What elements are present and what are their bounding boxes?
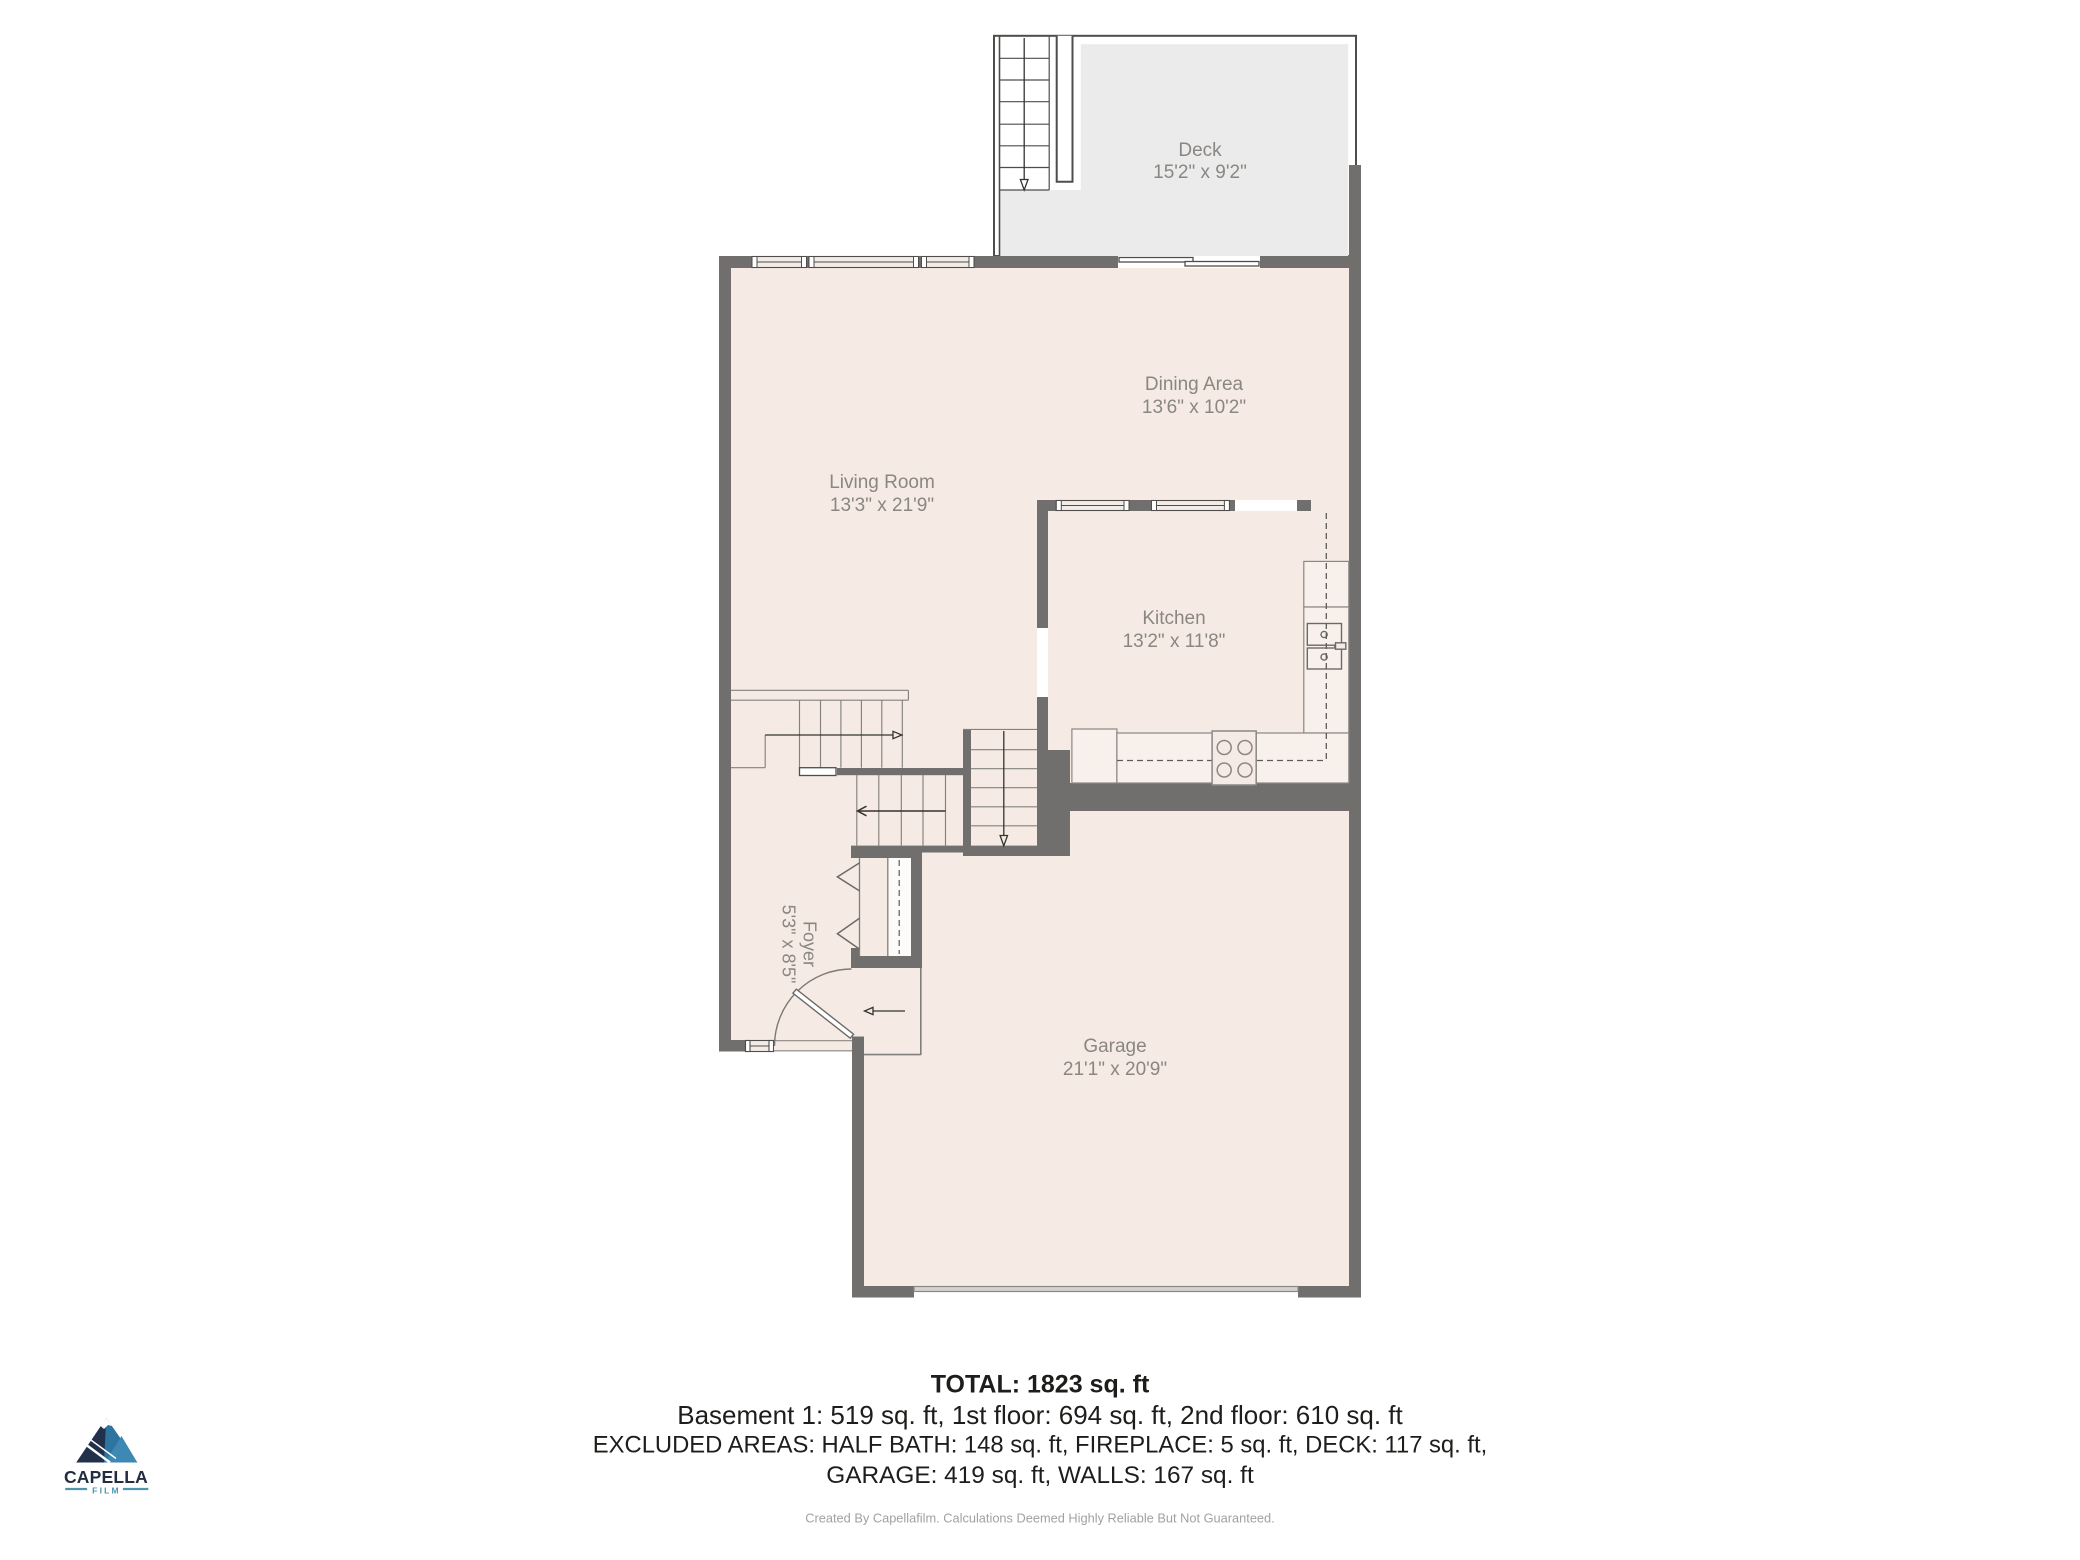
svg-text:Living Room: Living Room [829,472,935,493]
svg-text:13'2" x 11'8": 13'2" x 11'8" [1123,631,1226,652]
svg-text:EXCLUDED AREAS: HALF BATH: 148: EXCLUDED AREAS: HALF BATH: 148 sq. ft, F… [593,1432,1487,1459]
svg-text:Dining Area: Dining Area [1145,374,1244,395]
svg-text:Garage: Garage [1083,1036,1146,1057]
svg-text:13'6" x 10'2": 13'6" x 10'2" [1142,397,1246,418]
svg-text:Kitchen: Kitchen [1142,608,1205,629]
svg-text:21'1" x 20'9": 21'1" x 20'9" [1063,1059,1167,1080]
svg-text:13'3" x 21'9": 13'3" x 21'9" [830,495,934,516]
svg-text:FILM: FILM [92,1486,121,1496]
svg-text:CAPELLA: CAPELLA [64,1467,148,1487]
svg-text:5'3" x 8'5": 5'3" x 8'5" [779,905,799,984]
svg-text:Basement 1: 519 sq. ft, 1st fl: Basement 1: 519 sq. ft, 1st floor: 694 s… [677,1400,1403,1430]
svg-text:GARAGE: 419 sq. ft, WALLS: 167: GARAGE: 419 sq. ft, WALLS: 167 sq. ft [826,1462,1254,1489]
svg-text:15'2" x 9'2": 15'2" x 9'2" [1153,162,1247,183]
svg-text:TOTAL: 1823 sq. ft: TOTAL: 1823 sq. ft [931,1371,1150,1399]
svg-text:Created By Capellafilm. Calcul: Created By Capellafilm. Calculations Dee… [805,1511,1274,1526]
svg-text:Deck: Deck [1178,140,1222,161]
svg-text:Foyer: Foyer [800,921,820,967]
